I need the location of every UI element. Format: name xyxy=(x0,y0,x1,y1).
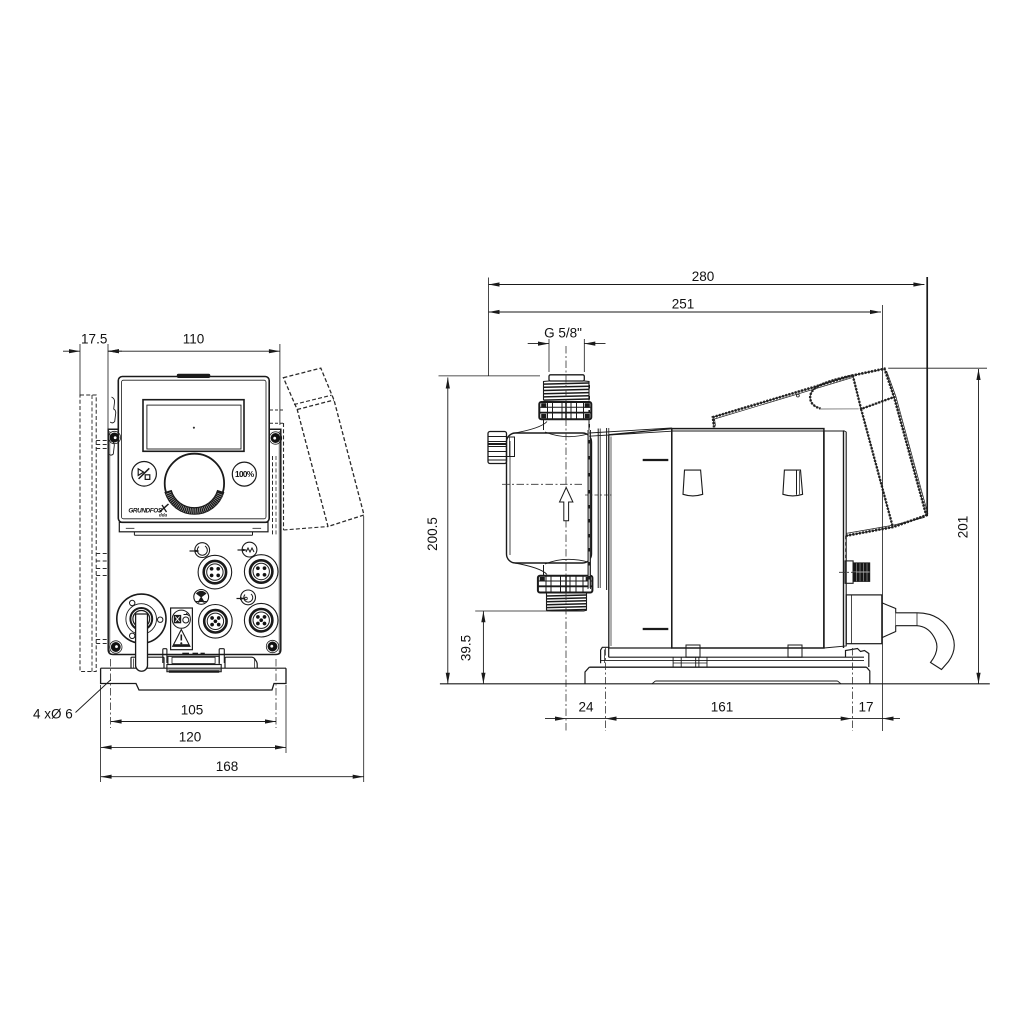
svg-text:168: 168 xyxy=(216,759,239,774)
svg-text:251: 251 xyxy=(672,297,695,312)
svg-text:GRUNDFOS: GRUNDFOS xyxy=(128,508,163,515)
svg-text:120: 120 xyxy=(179,730,202,745)
svg-text:dda: dda xyxy=(159,513,168,518)
svg-text:4 xØ 6: 4 xØ 6 xyxy=(33,707,73,722)
svg-text:201: 201 xyxy=(956,516,971,539)
svg-text:280: 280 xyxy=(692,269,715,284)
svg-text:161: 161 xyxy=(711,700,734,715)
svg-text:24: 24 xyxy=(578,700,594,715)
svg-text:100%: 100% xyxy=(235,470,255,479)
svg-text:17: 17 xyxy=(858,700,873,715)
svg-text:110: 110 xyxy=(183,332,205,347)
svg-text:G 5/8": G 5/8" xyxy=(544,326,582,341)
svg-text:200.5: 200.5 xyxy=(425,517,440,551)
svg-text:105: 105 xyxy=(181,703,204,718)
svg-text:39.5: 39.5 xyxy=(459,635,474,661)
svg-text:17.5: 17.5 xyxy=(81,332,107,347)
